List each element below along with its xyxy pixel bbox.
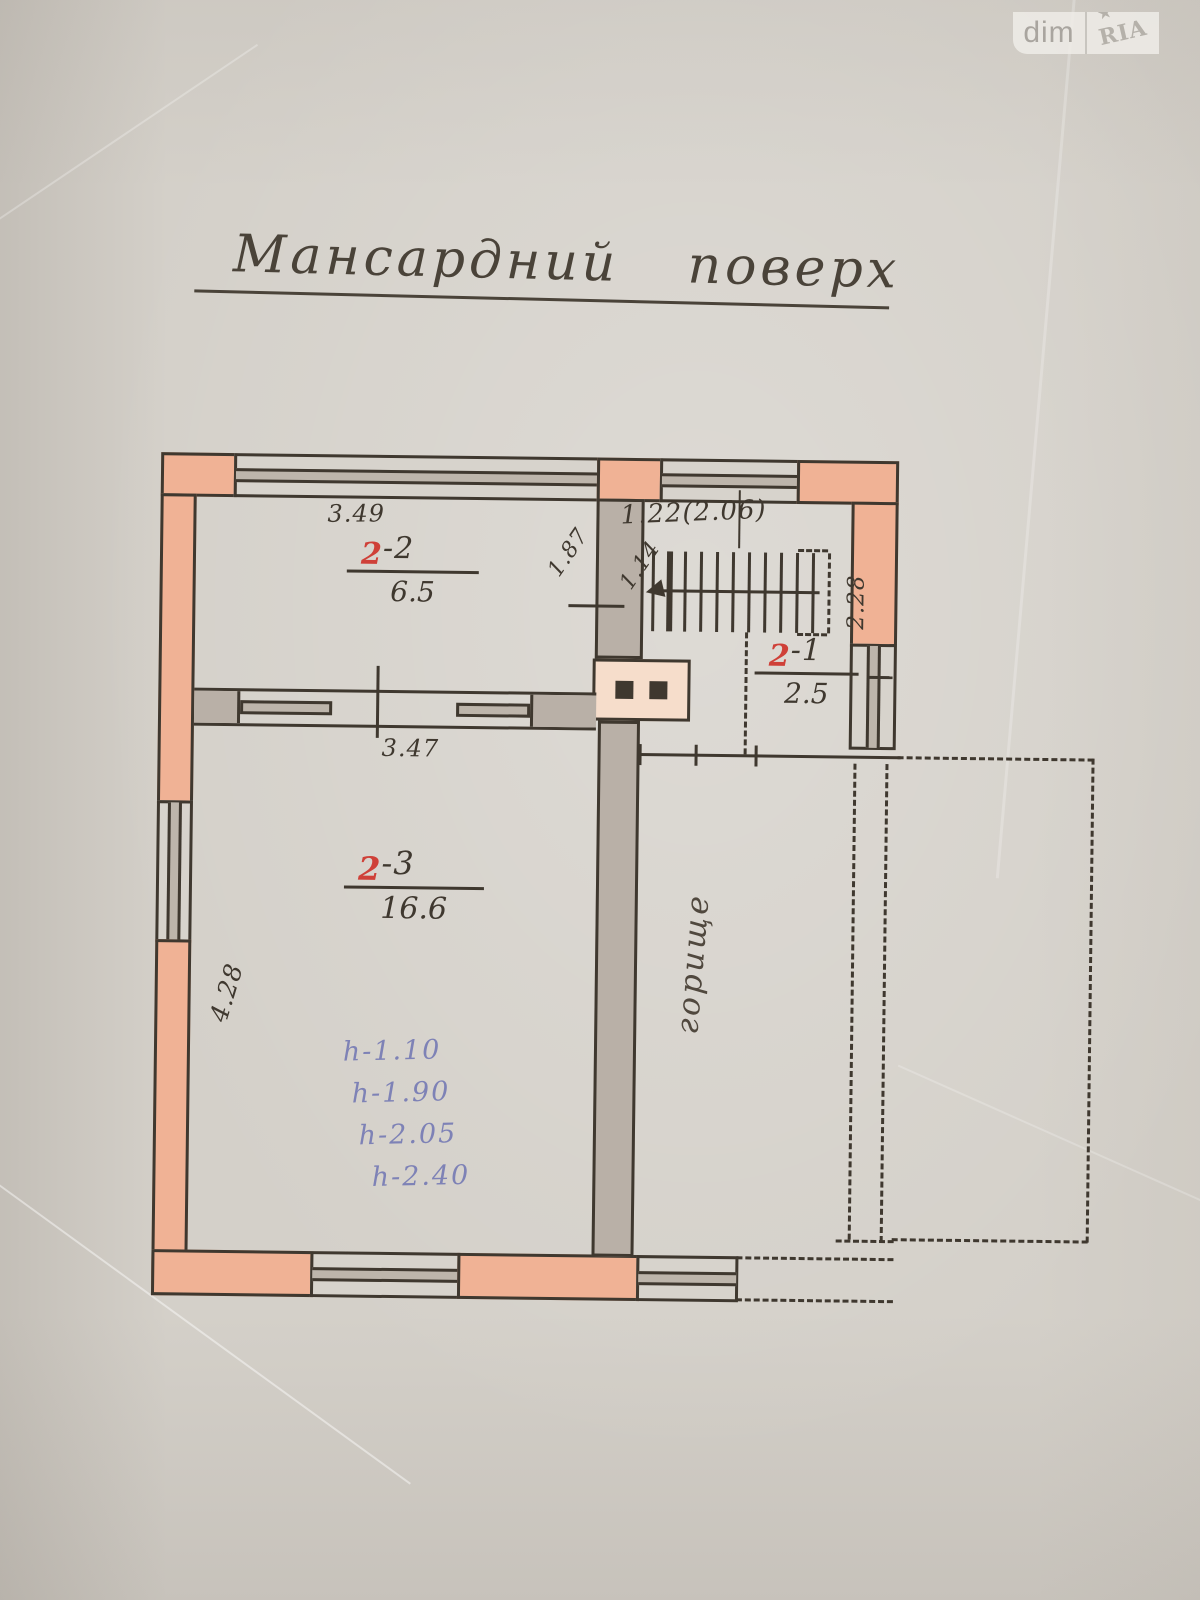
dimension-label: 4.28 <box>204 960 249 1025</box>
wall-bottom-left <box>151 1249 314 1297</box>
photo-of-floor-plan: { "watermark": { "left_text": "dim", "ri… <box>0 0 1200 1600</box>
wall-bottom-middle <box>457 1253 640 1301</box>
roof-overhang-dashed <box>898 756 1094 761</box>
window-top-left <box>234 453 601 501</box>
page-title: Мансардний поверх <box>194 223 900 300</box>
partition-pier <box>194 691 240 724</box>
partition-wall <box>194 688 596 731</box>
roof-overhang-dashed <box>1086 759 1095 1243</box>
dimension-label: 1.22(2.06) <box>620 495 767 531</box>
room-number-suffix: -1 <box>791 633 823 668</box>
dimension-label: 2.28 <box>843 574 870 630</box>
fraction-dash <box>869 676 893 679</box>
roof-edge-dashed <box>836 1239 894 1243</box>
room-number-red: 2 <box>358 850 382 888</box>
window-left <box>155 800 193 942</box>
attic-label: горище <box>668 874 718 1054</box>
room-number-red: 2 <box>361 537 383 572</box>
dimension-tick <box>754 745 757 766</box>
chimney-block <box>592 658 691 721</box>
partition-pier <box>530 695 596 728</box>
window-glazing <box>638 1271 736 1286</box>
stair-stringer-line <box>650 589 820 594</box>
flue-channel <box>649 681 667 699</box>
stairwell-bottom-wall <box>639 753 901 759</box>
window-glazing <box>236 468 598 486</box>
wall-top-middle-pier <box>597 458 664 503</box>
window-bottom <box>310 1251 461 1299</box>
window-bottom-attic <box>636 1255 739 1302</box>
height-note-line: h-2.40 <box>371 1154 471 1198</box>
roof-edge-dashed <box>736 1256 893 1261</box>
height-notes: h-1.10 h-1.90 h-2.05 h-2.40 <box>342 1029 470 1199</box>
roof-edge-dashed <box>848 764 857 1240</box>
room-area: 16.6 <box>343 890 483 927</box>
window-glazing <box>865 646 880 748</box>
partition-window <box>456 703 530 718</box>
headroom-dashed-line <box>744 632 748 754</box>
wall-top-right-corner <box>797 460 900 505</box>
staircase <box>649 551 836 633</box>
dimension-tick <box>568 604 624 608</box>
dimension-tick <box>638 744 641 765</box>
watermark-ria-text: ★ RIA <box>1083 12 1159 54</box>
room-number-suffix: -2 <box>383 531 415 566</box>
watermark-dim-text: dim <box>1013 12 1087 54</box>
wall-top-left-corner <box>161 452 238 497</box>
floor-plan: 3.49 3.47 1.22(2.06) 1.87 1.14 2.28 4.28… <box>135 439 1136 1331</box>
room-label-2-2: 2-2 6.5 <box>346 536 479 609</box>
wall-left-upper <box>157 493 197 803</box>
dimension-tick <box>694 745 697 766</box>
height-note-line: h-2.05 <box>358 1112 470 1156</box>
stair-cut-line <box>827 553 831 633</box>
wall-central <box>591 721 640 1257</box>
flue-channel <box>615 681 633 699</box>
room-label-2-1: 2-1 2.5 <box>754 638 859 710</box>
room-number-red: 2 <box>769 639 791 674</box>
room-label-2-3: 2-3 16.6 <box>343 849 484 927</box>
roof-edge-dashed <box>736 1298 893 1303</box>
room-number: 2-3 <box>344 849 484 889</box>
window-glazing <box>662 473 798 489</box>
stair-cut-line <box>798 549 828 552</box>
room-number: 2-1 <box>755 638 859 674</box>
room-number: 2-2 <box>347 536 479 573</box>
room-number-suffix: -3 <box>381 844 415 882</box>
dimension-label: 3.47 <box>381 734 439 763</box>
dim-ria-watermark: dim ★ RIA <box>1013 12 1159 54</box>
dimension-label: 1.87 <box>543 524 594 582</box>
dimension-tick <box>738 490 741 548</box>
room-area: 2.5 <box>754 676 858 710</box>
wall-left-lower <box>151 939 191 1295</box>
stair-direction-arrow-icon <box>644 579 666 601</box>
roof-overhang-dashed <box>892 1238 1088 1243</box>
room-area: 6.5 <box>346 574 478 609</box>
page-title-block: Мансардний поверх <box>194 223 900 309</box>
height-note-line: h-1.10 <box>342 1029 468 1074</box>
roof-edge-dashed <box>880 764 889 1242</box>
dimension-label: 3.49 <box>327 499 385 527</box>
partition-window <box>240 700 332 715</box>
height-note-line: h-1.90 <box>351 1071 469 1115</box>
window-glazing <box>312 1267 458 1283</box>
window-glazing <box>166 802 182 940</box>
